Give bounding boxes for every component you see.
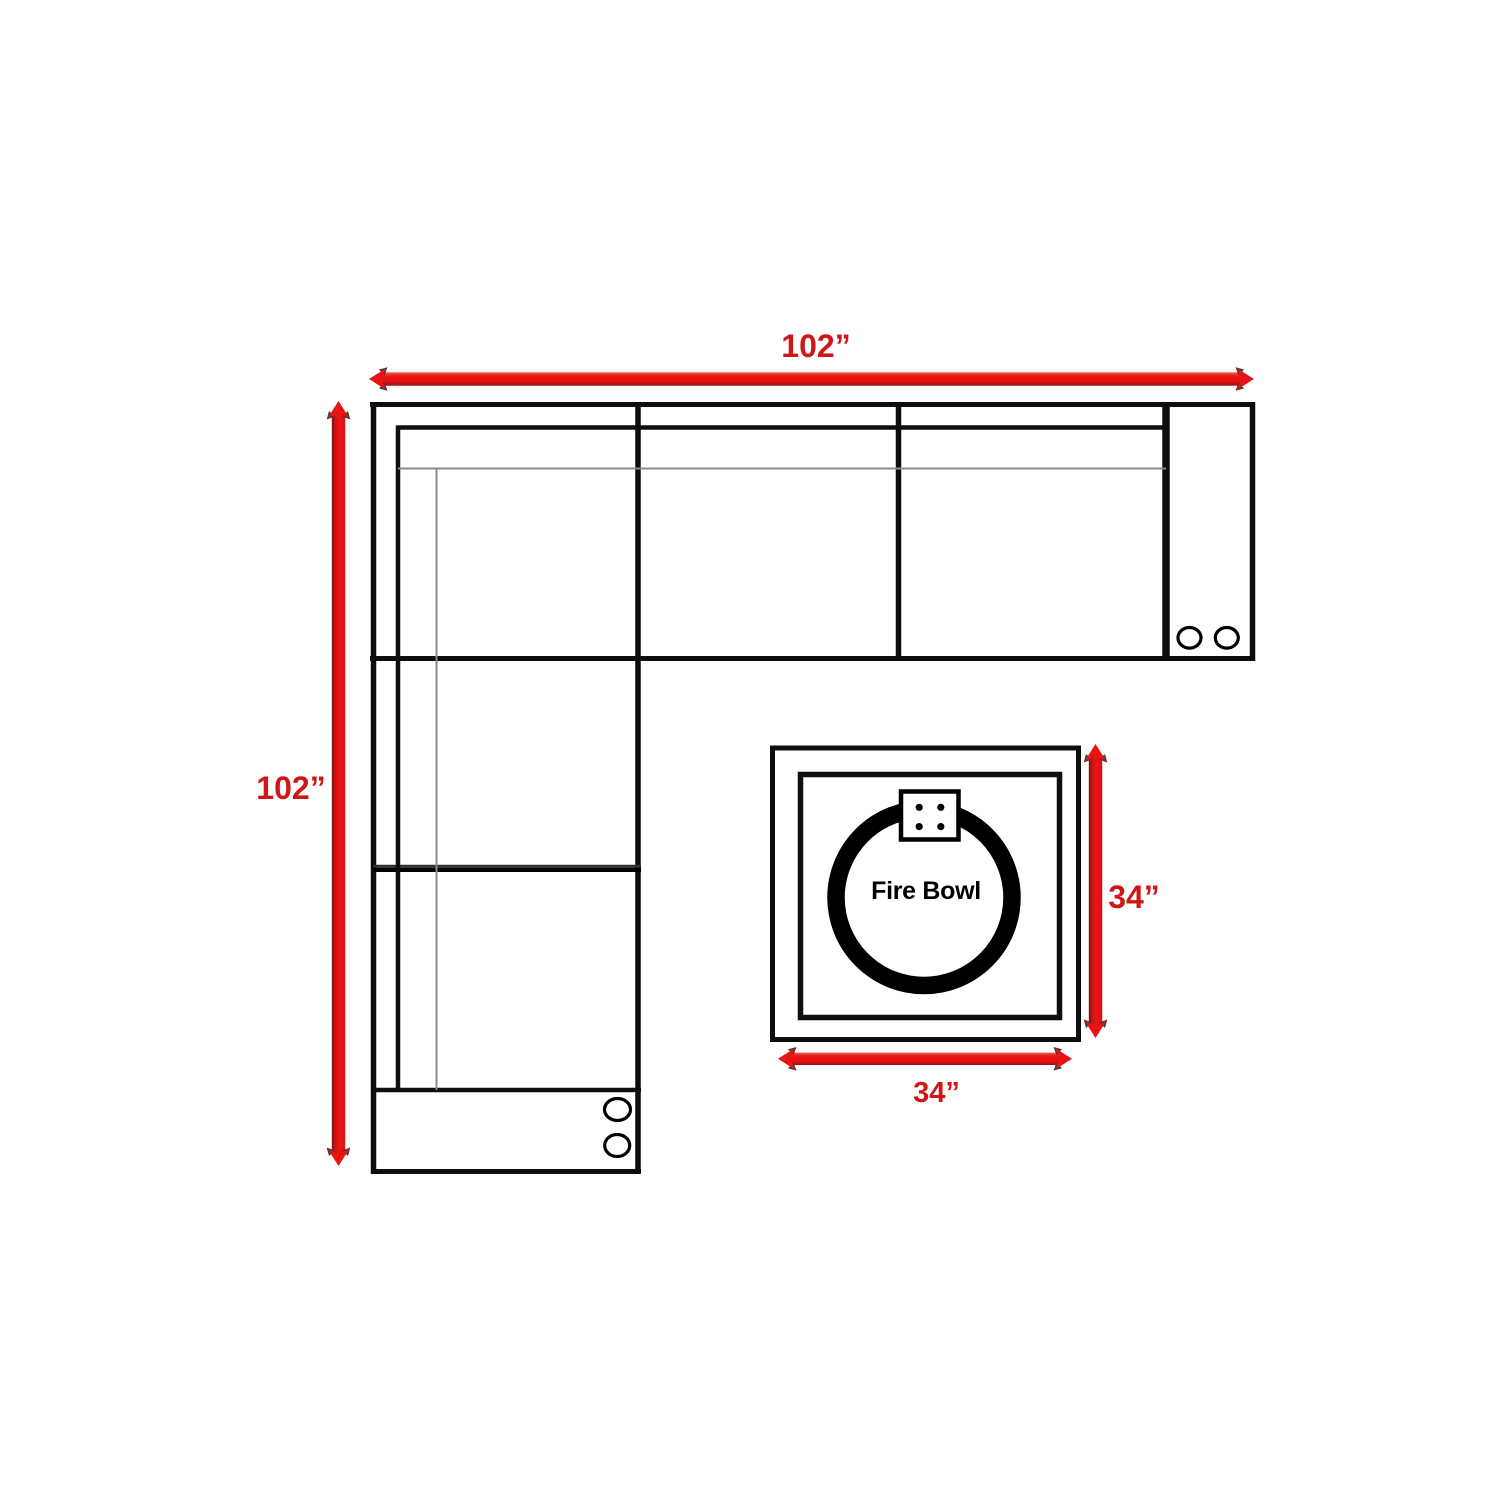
svg-text:102”: 102” (781, 328, 850, 364)
svg-text:34”: 34” (913, 1077, 960, 1109)
svg-text:102”: 102” (256, 770, 325, 806)
svg-text:34”: 34” (1108, 879, 1160, 915)
svg-text:Fire Bowl: Fire Bowl (871, 877, 981, 905)
